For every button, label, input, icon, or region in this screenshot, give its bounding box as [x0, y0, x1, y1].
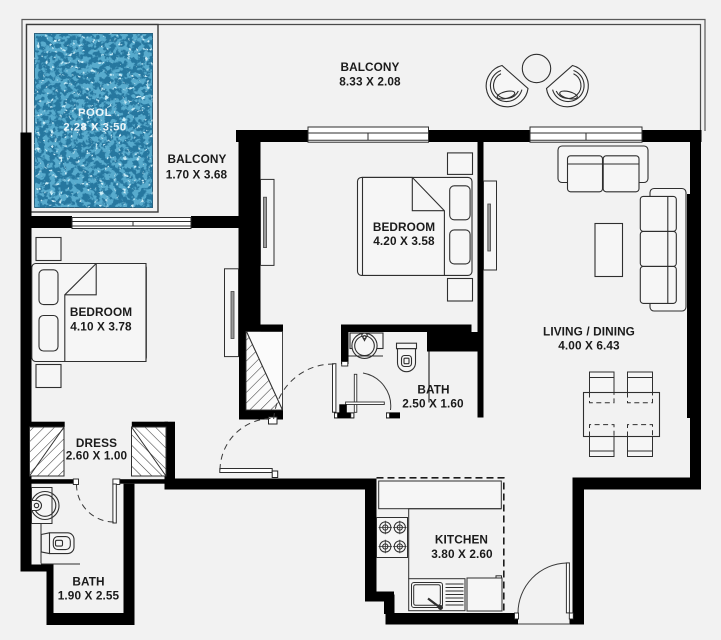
- svg-text:1.90 X 2.55: 1.90 X 2.55: [58, 589, 120, 603]
- svg-text:LIVING / DINING: LIVING / DINING: [543, 325, 635, 339]
- svg-text:2.50 X 1.60: 2.50 X 1.60: [402, 397, 464, 411]
- svg-text:BATH: BATH: [72, 575, 104, 589]
- svg-text:BEDROOM: BEDROOM: [373, 220, 435, 234]
- svg-text:BATH: BATH: [417, 383, 449, 397]
- svg-text:BEDROOM: BEDROOM: [70, 305, 132, 319]
- svg-text:2.60 X 1.00: 2.60 X 1.00: [66, 449, 128, 463]
- svg-text:1.70 X 3.68: 1.70 X 3.68: [166, 168, 228, 182]
- svg-text:2.28 X 3.50: 2.28 X 3.50: [63, 122, 126, 134]
- svg-text:4.20 X 3.58: 4.20 X 3.58: [373, 234, 435, 248]
- svg-text:4.00 X 6.43: 4.00 X 6.43: [558, 339, 620, 353]
- svg-text:8.33 X 2.08: 8.33 X 2.08: [339, 75, 401, 89]
- svg-text:3.80 X 2.60: 3.80 X 2.60: [431, 547, 493, 561]
- svg-text:BALCONY: BALCONY: [340, 60, 399, 74]
- svg-text:4.10 X 3.78: 4.10 X 3.78: [70, 320, 132, 334]
- svg-text:BALCONY: BALCONY: [167, 152, 226, 166]
- svg-text:KITCHEN: KITCHEN: [435, 533, 488, 547]
- svg-text:POOL: POOL: [78, 107, 112, 119]
